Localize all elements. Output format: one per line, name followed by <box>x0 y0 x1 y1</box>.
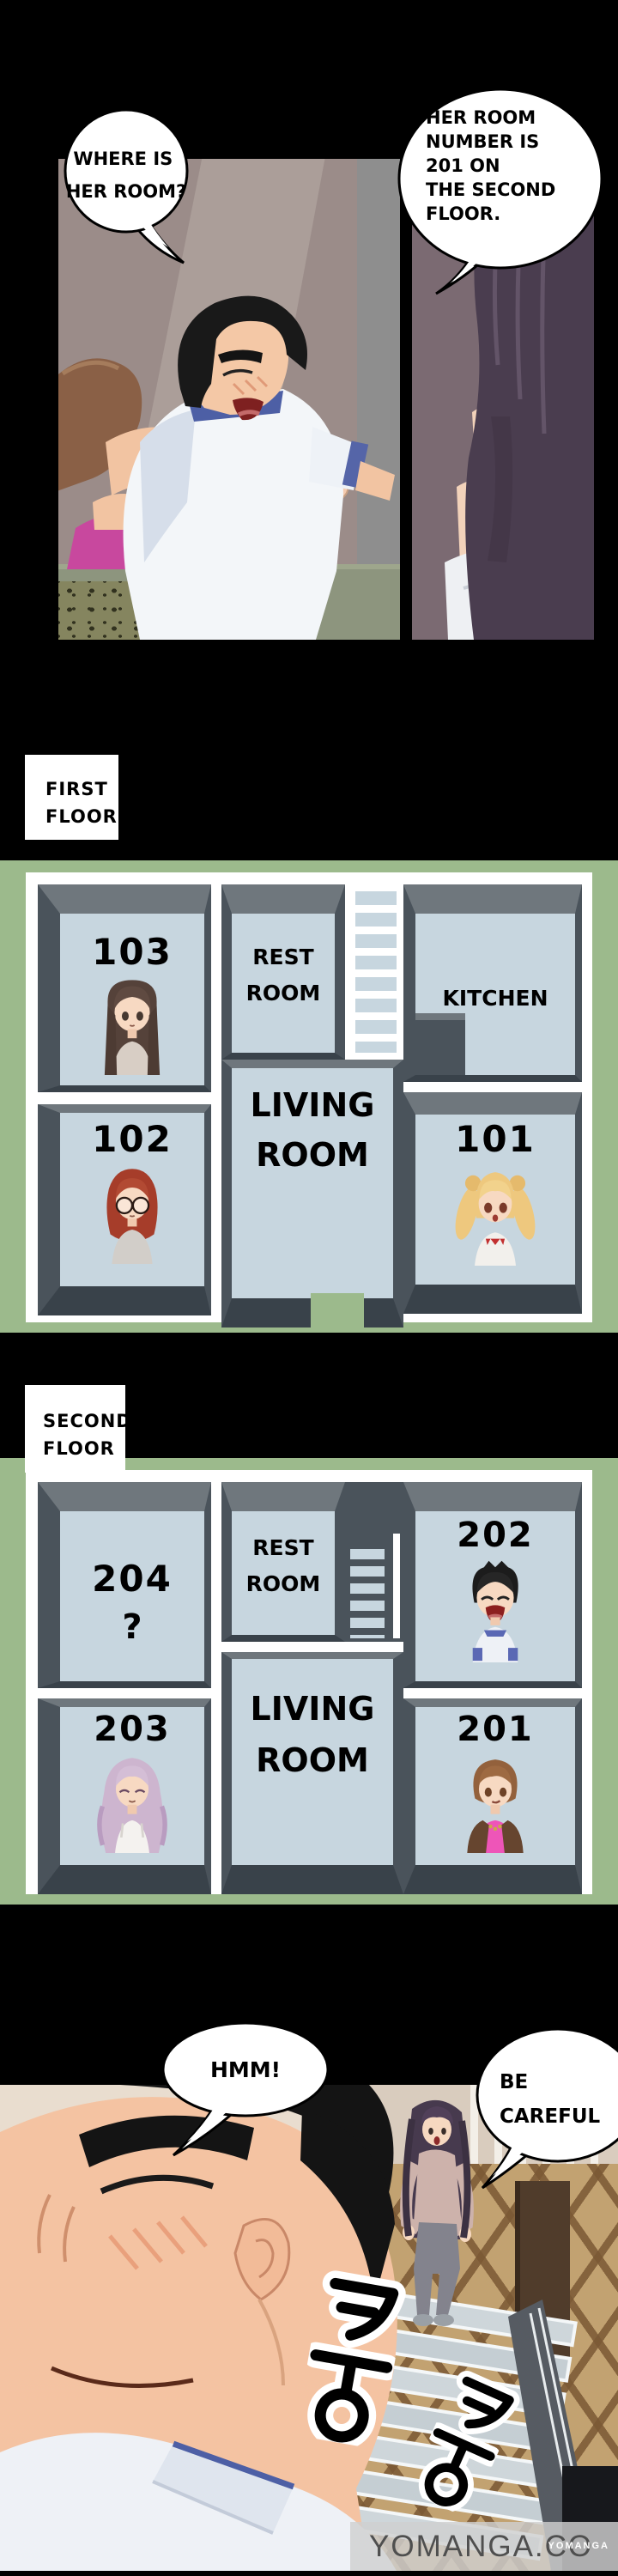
portrait-girl-short-brown-hair <box>451 1752 539 1853</box>
first-floor-label: FIRST FLOOR <box>25 755 118 840</box>
bubble-text-hmm: HMM! <box>210 2057 281 2082</box>
stairs-1f <box>345 884 403 1060</box>
room-rest-room-2f: REST ROOM <box>221 1482 345 1642</box>
first-floor-label-line1: FIRST <box>45 775 118 803</box>
stairs-1f-steps <box>355 891 397 1053</box>
room-103: 103 <box>38 884 211 1092</box>
first-floor-plan-section: 103 REST ROOM <box>0 860 618 1333</box>
room-living-1f: LIVING ROOM <box>221 1060 403 1327</box>
room-204: 204 ? <box>38 1482 211 1688</box>
watermark-bar: YOMANGA.CO YOMANGA <box>350 2522 618 2571</box>
room-202: 202 <box>403 1482 582 1688</box>
room-203: 203 <box>38 1698 211 1894</box>
first-floor-label-line2: FLOOR <box>45 803 118 830</box>
second-floor-label-line1: SECOND <box>43 1407 125 1435</box>
stairs-2f-steps <box>350 1549 385 1638</box>
first-floor-plan-frame: 103 REST ROOM <box>26 872 592 1322</box>
rest-room-2f-label: REST ROOM <box>232 1511 335 1602</box>
room-201: 201 <box>403 1698 582 1894</box>
speech-bubble-room-number: HER ROOM NUMBER IS 201 ON THE SECOND FLO… <box>386 86 618 296</box>
room-202-number: 202 <box>415 1511 575 1554</box>
second-floor-label: SECOND FLOOR <box>25 1385 125 1473</box>
room-rest-room-1f: REST ROOM <box>221 884 345 1060</box>
room-101-number: 101 <box>415 1115 575 1159</box>
portrait-girl-red-hair-glasses <box>89 1163 175 1264</box>
room-living-2f: LIVING ROOM <box>221 1652 403 1894</box>
panel-hallway-scene: WHERE IS HER ROOM? HER ROOM NUMBER IS 20… <box>0 0 618 860</box>
watermark-badge: YOMANGA <box>548 2541 609 2551</box>
speech-bubble-where-is-her-room: WHERE IS HER ROOM? <box>53 108 199 276</box>
entrance-door-mat <box>311 1293 364 1327</box>
stairs-2f <box>345 1482 403 1642</box>
living-room-2f-label: LIVING ROOM <box>232 1659 393 1786</box>
room-203-number: 203 <box>60 1707 204 1748</box>
second-floor-plan-frame: 204 ? REST ROOM 202 <box>26 1470 592 1894</box>
room-103-number: 103 <box>60 914 204 972</box>
kitchen-wall-notch <box>415 1013 465 1075</box>
room-102: 102 <box>38 1104 211 1315</box>
room-204-question-mark: ? <box>60 1607 204 1647</box>
room-kitchen: KITCHEN <box>403 884 582 1082</box>
rest-room-1f-label: REST ROOM <box>232 914 335 1012</box>
kitchen-label: KITCHEN <box>415 914 575 1011</box>
second-floor-plan-section: 204 ? REST ROOM 202 <box>0 1458 618 1905</box>
room-204-number: 204 <box>60 1511 204 1599</box>
panel-stairs-scene: HMM! BE CAREFUL <box>0 1905 618 2576</box>
stairs-2f-rail <box>393 1534 400 1638</box>
room-201-number: 201 <box>415 1707 575 1748</box>
portrait-girl-blonde-pigtails <box>451 1163 540 1266</box>
second-floor-label-line2: FLOOR <box>43 1435 125 1462</box>
portrait-girl-long-pink-hair <box>88 1752 176 1853</box>
speech-bubble-be-careful: BE CAREFUL <box>474 2026 618 2198</box>
living-room-1f-label: LIVING ROOM <box>232 1068 393 1180</box>
bottom-black-strip <box>0 2571 618 2576</box>
room-102-number: 102 <box>60 1113 204 1159</box>
portrait-girl-long-brown-hair <box>89 975 175 1075</box>
room-101: 101 <box>403 1092 582 1314</box>
speech-bubble-hmm: HMM! <box>160 2020 331 2167</box>
comic-page: WHERE IS HER ROOM? HER ROOM NUMBER IS 20… <box>0 0 618 2576</box>
portrait-boy-black-hair <box>451 1558 540 1662</box>
